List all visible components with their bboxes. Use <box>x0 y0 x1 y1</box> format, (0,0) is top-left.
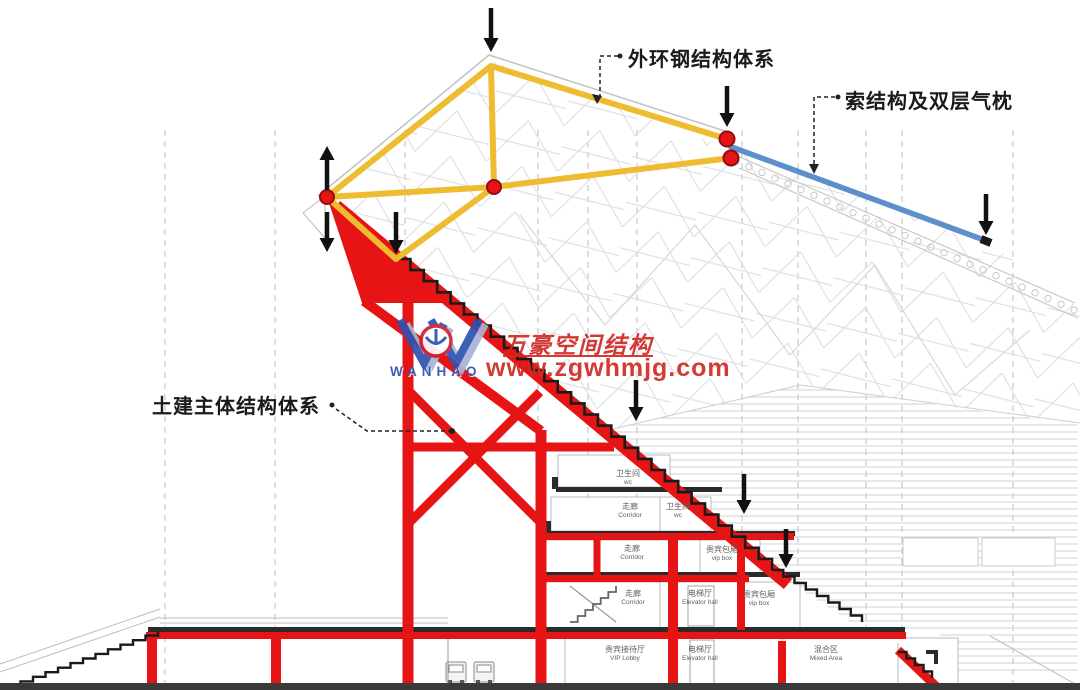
annotation-cable-air-pillow: 索结构及双层气枕 <box>845 85 1013 114</box>
room-label-wc-upper: 卫生间wc <box>616 469 640 486</box>
room-label-mixed-area: 混合区Mixed Area <box>810 645 843 662</box>
vehicle-icon <box>474 662 494 683</box>
room-label-elevator-hall-1: 电梯厅Elevator hall <box>682 589 718 606</box>
ground-slab <box>0 683 1080 690</box>
room-label-wc-lower: 卫生间wc <box>666 502 690 519</box>
watermark-url: www.zgwhmjg.com <box>486 354 731 383</box>
stadium-section-diagram: 外环钢结构体系 索结构及双层气枕 土建主体结构体系 万豪空间结构 www.zgw… <box>0 0 1080 690</box>
watermark-logo-text: WANHAO <box>390 364 482 379</box>
annotation-civil-structure: 土建主体结构体系 <box>152 390 320 419</box>
room-label-vip-box-2: 贵宾包厢vip box <box>743 590 775 607</box>
room-label-vip-lobby: 贵宾接待厅VIP Lobby <box>605 645 645 662</box>
room-label-corridor-3: 走廊Corridor <box>621 589 644 606</box>
annotation-outer-ring-steel: 外环钢结构体系 <box>628 43 775 72</box>
vehicle-icon <box>446 662 466 683</box>
room-label-vip-box-1: 贵宾包厢vip box <box>706 545 738 562</box>
room-label-corridor-1: 走廊Corridor <box>618 502 641 519</box>
room-label-elevator-hall-2: 电梯厅Elevator hall <box>682 645 718 662</box>
room-label-corridor-2: 走廊Corridor <box>620 544 643 561</box>
